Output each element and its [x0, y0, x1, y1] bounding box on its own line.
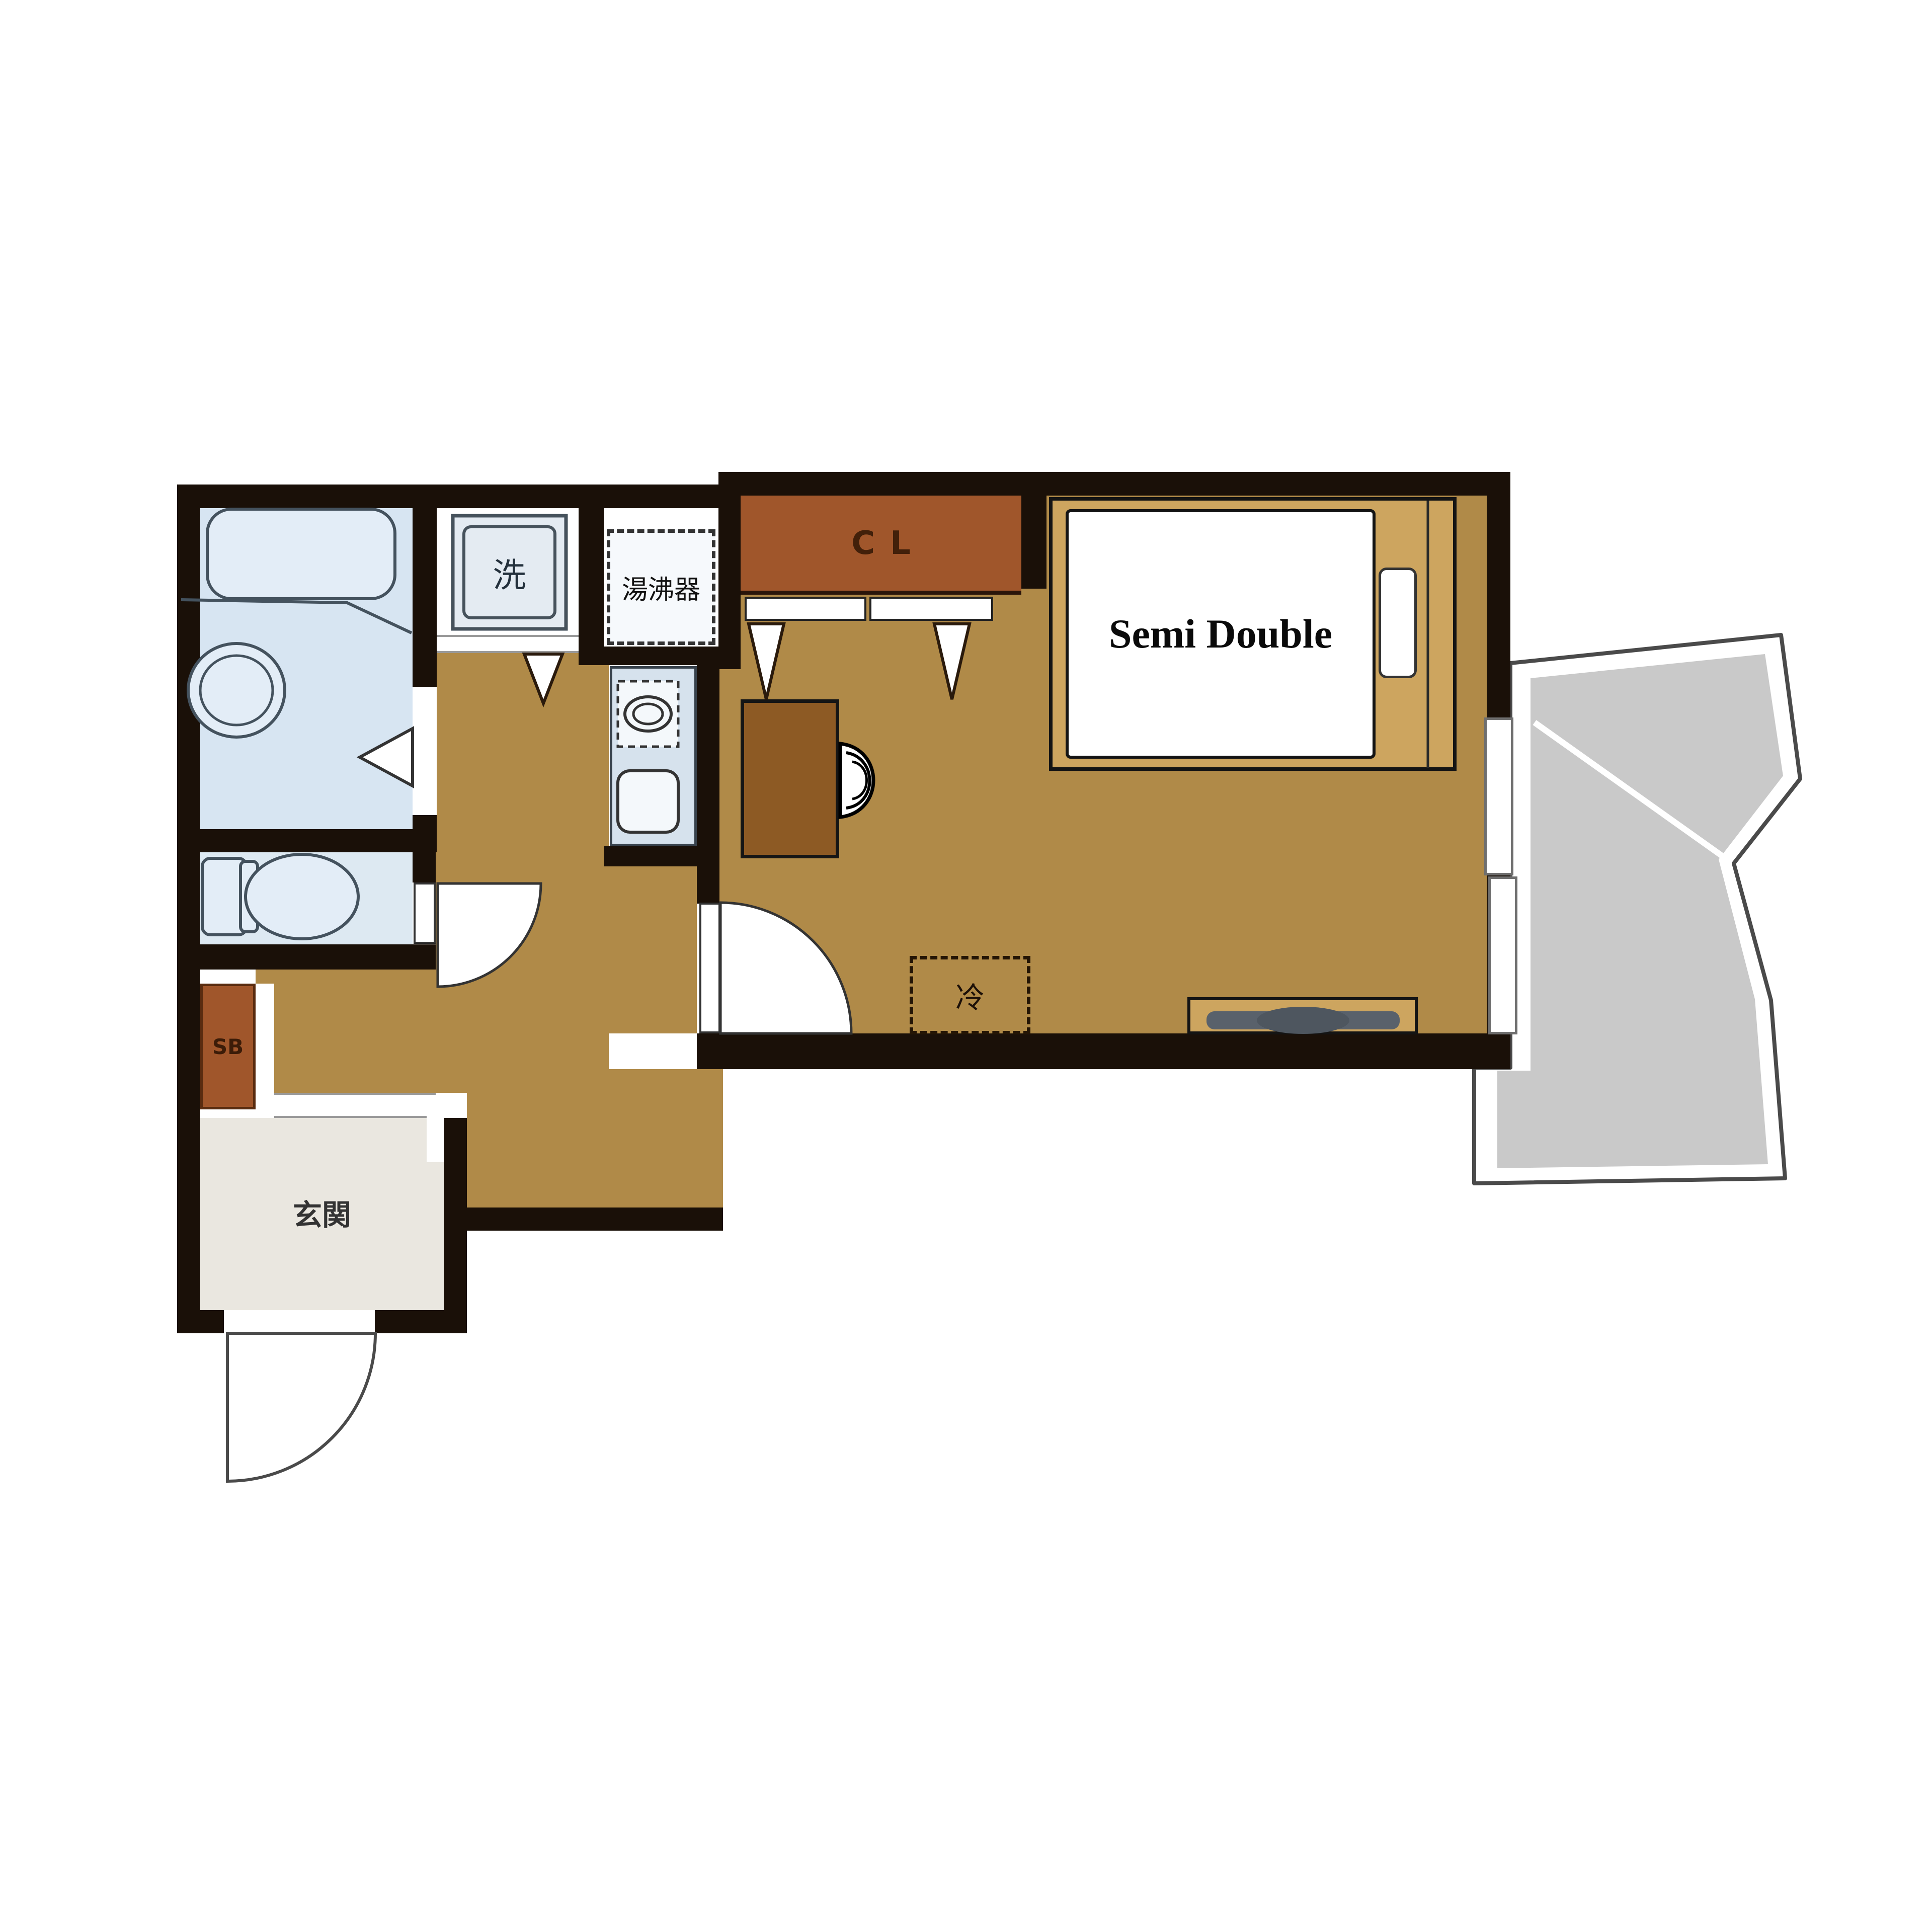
toilet-door-leaf [415, 883, 435, 943]
laundry-arrow [524, 654, 562, 703]
shoe-box-label: SB [200, 984, 256, 1109]
floor-plan: CL Semi Double 洗 湯沸器 冷 SB 玄関 [0, 0, 1932, 1932]
kitchen-sink [618, 771, 678, 832]
washbasin [188, 643, 285, 737]
front-door-swing [227, 1333, 375, 1481]
bathtub [207, 509, 395, 599]
washing-machine-label: 洗 [453, 516, 566, 629]
bath-counter-line [181, 600, 412, 633]
closet-label: CL [741, 513, 1021, 574]
entrance-label: 玄関 [200, 1167, 444, 1258]
closet-arrow-left [749, 624, 784, 699]
stove-burner-box [618, 681, 678, 747]
tv-center [1257, 1007, 1349, 1034]
closet-arrow-right [934, 624, 970, 699]
bed-label: Semi Double [1066, 599, 1376, 669]
toilet-bowl [246, 854, 358, 939]
main-door-leaf [700, 904, 719, 1032]
main-door-swing [720, 903, 851, 1033]
bathroom-door-arrow [360, 729, 413, 786]
water-heater-label: 湯沸器 [607, 529, 715, 645]
refrigerator-label: 冷 [910, 956, 1030, 1034]
toilet-door-swing [438, 883, 541, 987]
